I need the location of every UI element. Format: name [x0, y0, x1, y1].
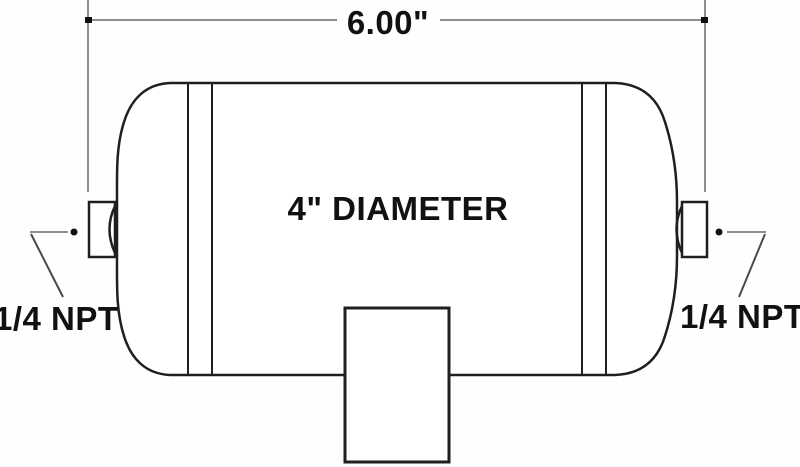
left-leader-dot	[71, 229, 78, 236]
left-port	[89, 202, 115, 257]
length-dimension-label: 6.00"	[347, 4, 429, 41]
diameter-label: 4" DIAMETER	[288, 190, 509, 227]
diagram-canvas: 6.00" 4" DIAMETER 1/4 NPT 1/4 NPT	[0, 0, 800, 467]
left-port-label: 1/4 NPT	[0, 300, 119, 337]
air-tank-diagram: 6.00" 4" DIAMETER 1/4 NPT 1/4 NPT	[0, 0, 800, 467]
left-leader-diagonal	[31, 234, 63, 297]
bottom-port	[345, 308, 449, 462]
right-port	[682, 202, 707, 257]
right-leader-diagonal	[739, 234, 765, 297]
right-leader-dot	[716, 229, 723, 236]
dimension-tick-left	[85, 17, 92, 23]
dimension-tick-right	[701, 17, 708, 23]
right-port-label: 1/4 NPT	[680, 298, 800, 335]
